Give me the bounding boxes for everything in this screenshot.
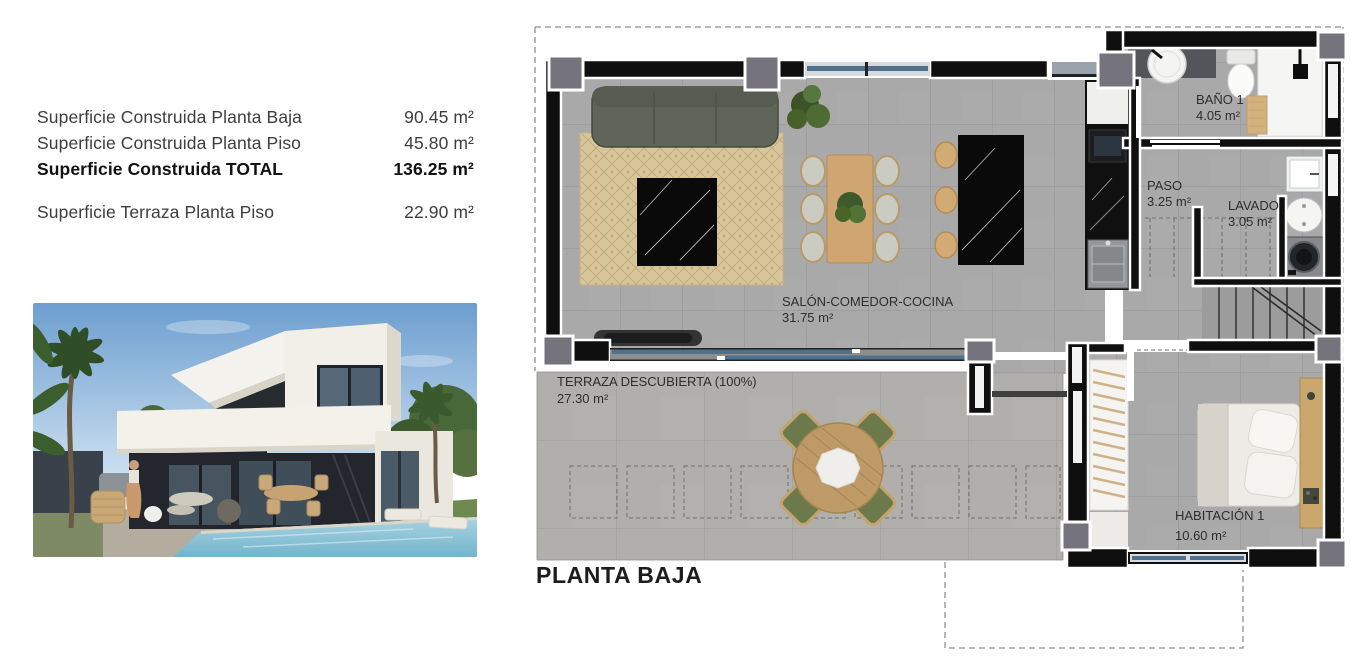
summary-value: 45.80 m²	[404, 133, 474, 154]
summary-value: 90.45 m²	[404, 107, 474, 128]
room-area-salon: 31.75 m²	[782, 310, 834, 325]
coffee-table-icon	[637, 178, 717, 266]
surface-summary: Superficie Construida Planta Baja 90.45 …	[37, 107, 474, 228]
room-area-paso: 3.25 m²	[1147, 194, 1192, 209]
summary-label: Superficie Terraza Planta Piso	[37, 202, 274, 223]
bedroom-window	[1128, 552, 1248, 564]
bedroom-side-window	[1072, 347, 1082, 383]
wardrobe-icon	[1090, 360, 1128, 548]
sliding-door-terrace	[610, 348, 970, 361]
villa-photo-art	[33, 303, 477, 557]
room-area-lavado: 3.05 m²	[1228, 214, 1273, 229]
room-area-bano: 4.05 m²	[1196, 108, 1241, 123]
summary-row-total: Superficie Construida TOTAL 136.25 m²	[37, 159, 474, 185]
basin-icon	[1286, 198, 1322, 232]
room-label-terraza: TERRAZA DESCUBIERTA (100%)	[557, 374, 757, 389]
villa-photo	[33, 303, 477, 557]
summary-label: Superficie Construida TOTAL	[37, 159, 283, 180]
summary-row: Superficie Construida Planta Baja 90.45 …	[37, 107, 474, 133]
bathroom-sliding-door	[1150, 140, 1220, 143]
room-area-habitacion: 10.60 m²	[1175, 528, 1227, 543]
summary-row: Superficie Terraza Planta Piso 22.90 m²	[37, 202, 474, 228]
room-label-bano: BAÑO 1	[1196, 92, 1244, 107]
sofa-icon	[592, 87, 778, 147]
room-label-paso: PASO	[1147, 178, 1182, 193]
dining-set-icon	[801, 155, 899, 263]
summary-row: Superficie Construida Planta Piso 45.80 …	[37, 133, 474, 159]
toilet-icon	[1227, 50, 1255, 98]
window-shower	[1328, 64, 1338, 118]
bedroom-door-leaf	[1127, 346, 1134, 401]
room-label-lavado: LAVADO	[1228, 198, 1279, 213]
laundry-area	[1285, 156, 1323, 278]
bed-icon	[1198, 404, 1300, 506]
laundry-sink-icon	[1286, 156, 1323, 192]
pillow	[1243, 451, 1298, 500]
summary-value: 22.90 m²	[404, 202, 474, 223]
headboard-shelf-icon	[1300, 378, 1323, 528]
shower-icon	[1258, 48, 1322, 136]
summary-value: 136.25 m²	[393, 159, 474, 180]
summary-label: Superficie Construida Planta Baja	[37, 107, 302, 128]
room-label-salon: SALÓN-COMEDOR-COCINA	[782, 294, 954, 309]
page: Superficie Construida Planta Baja 90.45 …	[0, 0, 1364, 663]
window-laundry	[1328, 154, 1338, 196]
fence-rail	[992, 391, 1067, 397]
kitchen-door-leaf	[1136, 86, 1141, 138]
room-label-habitacion: HABITACIÓN 1	[1175, 508, 1264, 523]
napkin	[816, 448, 860, 488]
plan-title: PLANTA BAJA	[536, 562, 702, 589]
kitchen-counter-icon	[1085, 80, 1130, 290]
pillar-sidelight	[975, 366, 984, 408]
summary-label: Superficie Construida Planta Piso	[37, 133, 301, 154]
room-area-terraza: 27.30 m²	[557, 391, 609, 406]
terrace-table-set	[779, 409, 897, 527]
washing-machine-icon	[1285, 237, 1323, 278]
kitchen-island-icon	[935, 135, 1024, 265]
